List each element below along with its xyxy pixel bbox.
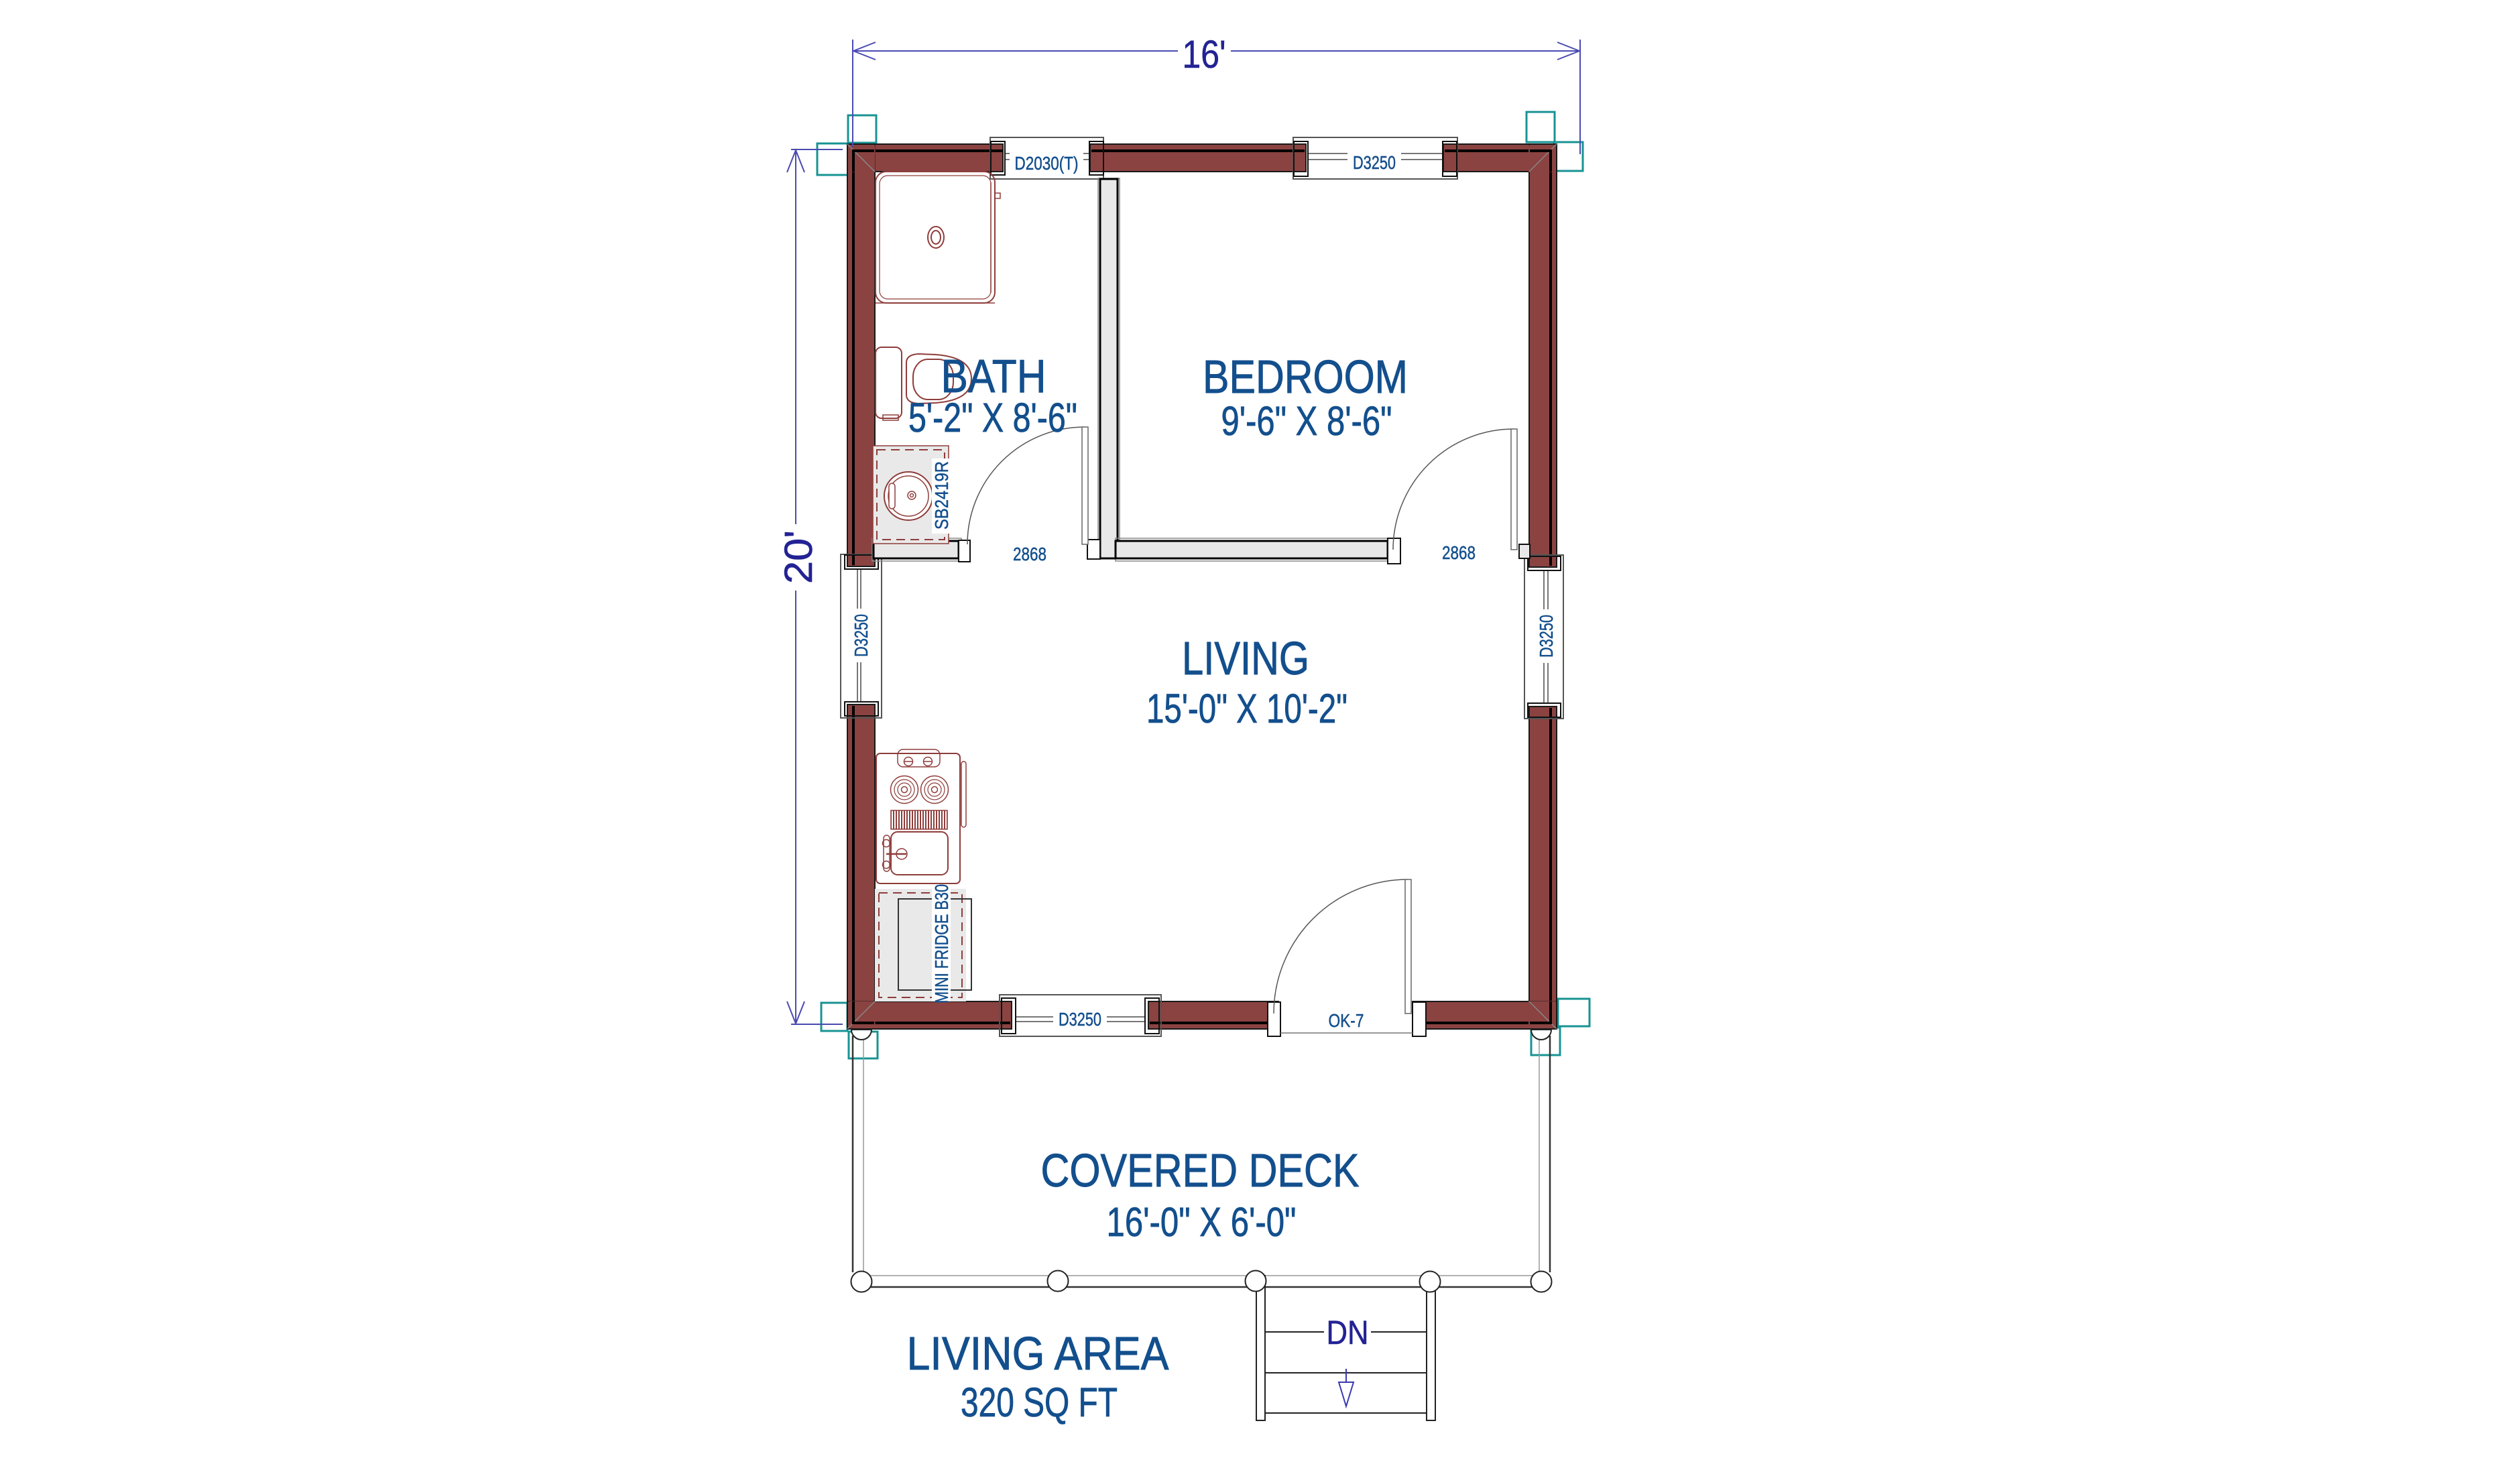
svg-text:15'-0" X 10'-2": 15'-0" X 10'-2" [1146, 686, 1347, 731]
svg-text:D2030(T): D2030(T) [1015, 153, 1079, 174]
svg-text:D3250: D3250 [1353, 152, 1396, 173]
svg-text:2868: 2868 [1013, 544, 1046, 564]
svg-text:D3250: D3250 [1059, 1009, 1101, 1030]
svg-text:20': 20' [777, 530, 821, 584]
svg-text:16': 16' [1183, 33, 1226, 76]
svg-text:2868: 2868 [1442, 542, 1476, 563]
svg-text:D3250: D3250 [1536, 615, 1557, 658]
svg-text:320 SQ FT: 320 SQ FT [961, 1380, 1118, 1425]
svg-text:5'-2" X 8'-6": 5'-2" X 8'-6" [908, 395, 1077, 440]
svg-text:DN: DN [1327, 1314, 1369, 1351]
svg-text:LIVING AREA: LIVING AREA [907, 1327, 1169, 1380]
svg-text:D3250: D3250 [851, 614, 872, 657]
svg-text:MINI FRIDGE B30: MINI FRIDGE B30 [931, 884, 952, 1003]
svg-text:OK-7: OK-7 [1329, 1010, 1364, 1031]
svg-text:SB2419R: SB2419R [931, 461, 952, 530]
svg-text:LIVING: LIVING [1182, 632, 1309, 684]
svg-text:16'-0" X 6'-0": 16'-0" X 6'-0" [1107, 1199, 1297, 1245]
svg-text:BEDROOM: BEDROOM [1203, 351, 1408, 403]
svg-text:COVERED DECK: COVERED DECK [1041, 1144, 1360, 1197]
svg-text:9'-6" X 8'-6": 9'-6" X 8'-6" [1221, 398, 1392, 444]
